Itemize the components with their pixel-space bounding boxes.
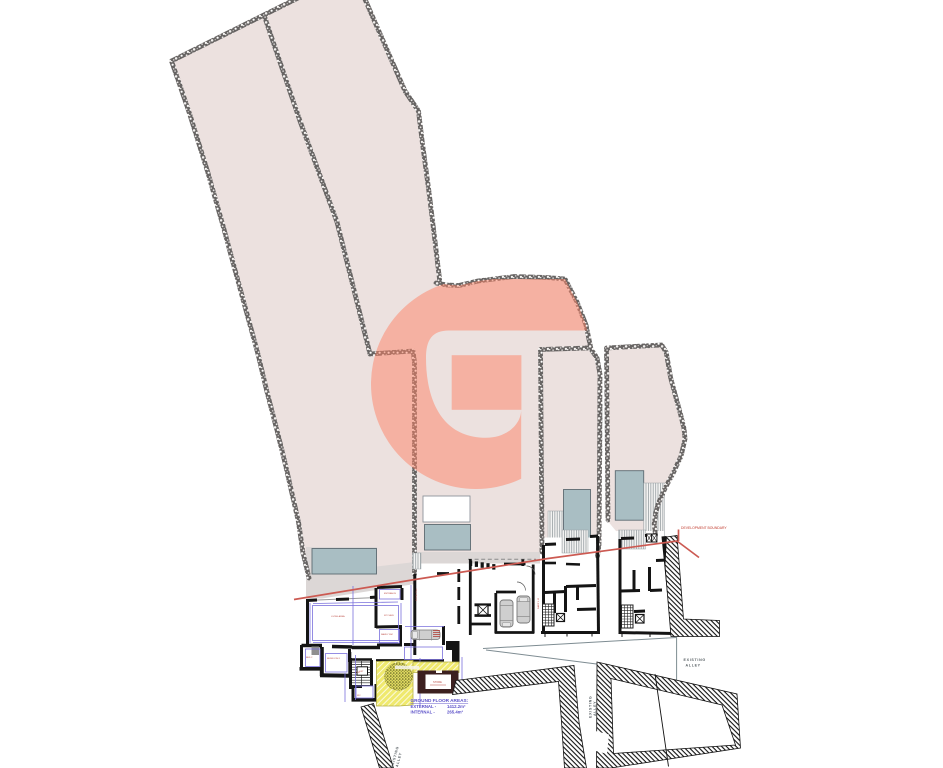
svg-text:DEVELOPMENT BOUNDARY: DEVELOPMENT BOUNDARY	[681, 526, 727, 530]
svg-text:BED 2: BED 2	[306, 657, 313, 659]
svg-text:KITCHEN: KITCHEN	[384, 615, 394, 617]
svg-text:1412.2m²: 1412.2m²	[447, 704, 466, 709]
svg-text:EXISTING: EXISTING	[684, 658, 706, 662]
svg-text:EXTERNAL -: EXTERNAL -	[411, 704, 437, 709]
svg-text:INTERNAL -: INTERNAL -	[411, 710, 436, 715]
svg-text:LIVING AREA: LIVING AREA	[331, 615, 345, 618]
svg-text:2ND PART TO FOOT PATH (Legal b: 2ND PART TO FOOT PATH (Legal boundary)	[600, 404, 604, 456]
svg-text:WC: WC	[357, 695, 361, 697]
svg-text:BEDROOM 1: BEDROOM 1	[327, 658, 341, 660]
svg-text:EXISTING: EXISTING	[589, 696, 593, 718]
svg-text:STORE: STORE	[433, 680, 442, 684]
svg-text:FAMILY RM: FAMILY RM	[381, 633, 393, 636]
svg-text:LIFT: LIFT	[356, 672, 361, 674]
svg-text:ALLEY: ALLEY	[593, 701, 597, 716]
svg-text:ALLEY: ALLEY	[686, 664, 701, 668]
svg-text:GROUND FLOOR AREAS:: GROUND FLOOR AREAS:	[411, 698, 469, 703]
svg-text:RAMP 1:12: RAMP 1:12	[537, 597, 540, 609]
svg-text:265.4m²: 265.4m²	[447, 710, 464, 715]
svg-text:ENTRANCE: ENTRANCE	[384, 592, 397, 595]
svg-text:R.O.W. 2.5m: R.O.W. 2.5m	[416, 588, 418, 601]
